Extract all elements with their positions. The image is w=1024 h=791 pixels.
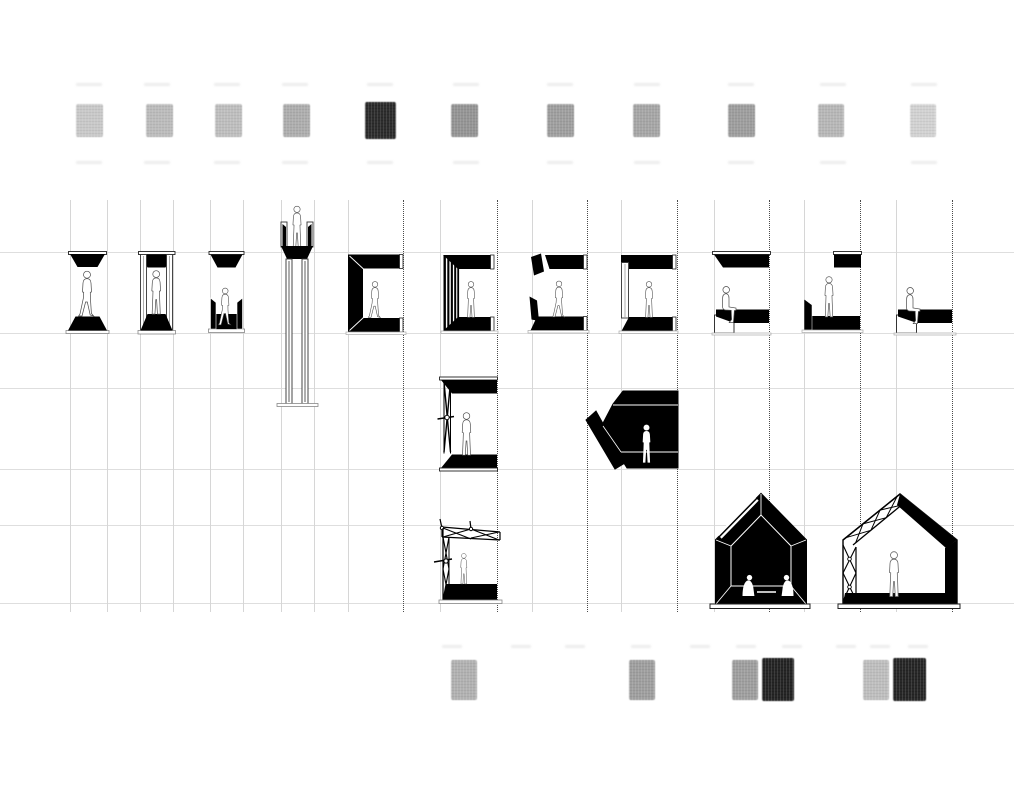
x-braced-enclosure-section xyxy=(438,377,498,471)
solid-gable-house-section xyxy=(710,494,810,609)
section-drawings xyxy=(0,0,1024,791)
glazed-wall-enclosure-section xyxy=(619,255,678,334)
wall-and-canopy-section xyxy=(802,252,863,333)
portal-frame-section xyxy=(138,252,176,335)
c-enclosure-section xyxy=(346,255,406,335)
louvered-enclosure-section xyxy=(441,255,498,334)
canopy-trough-section xyxy=(209,252,245,333)
lookout-tower-section xyxy=(277,206,318,406)
truss-gable-house-section xyxy=(838,494,960,609)
canopy-bench-section xyxy=(712,252,771,336)
presentation-board xyxy=(0,0,1024,791)
truss-pavilion-section xyxy=(434,519,502,604)
faceted-shelter-section xyxy=(586,391,678,469)
split-enclosure-section xyxy=(528,254,589,334)
canopy-plinth-section xyxy=(66,252,109,334)
bench-section xyxy=(894,288,956,336)
